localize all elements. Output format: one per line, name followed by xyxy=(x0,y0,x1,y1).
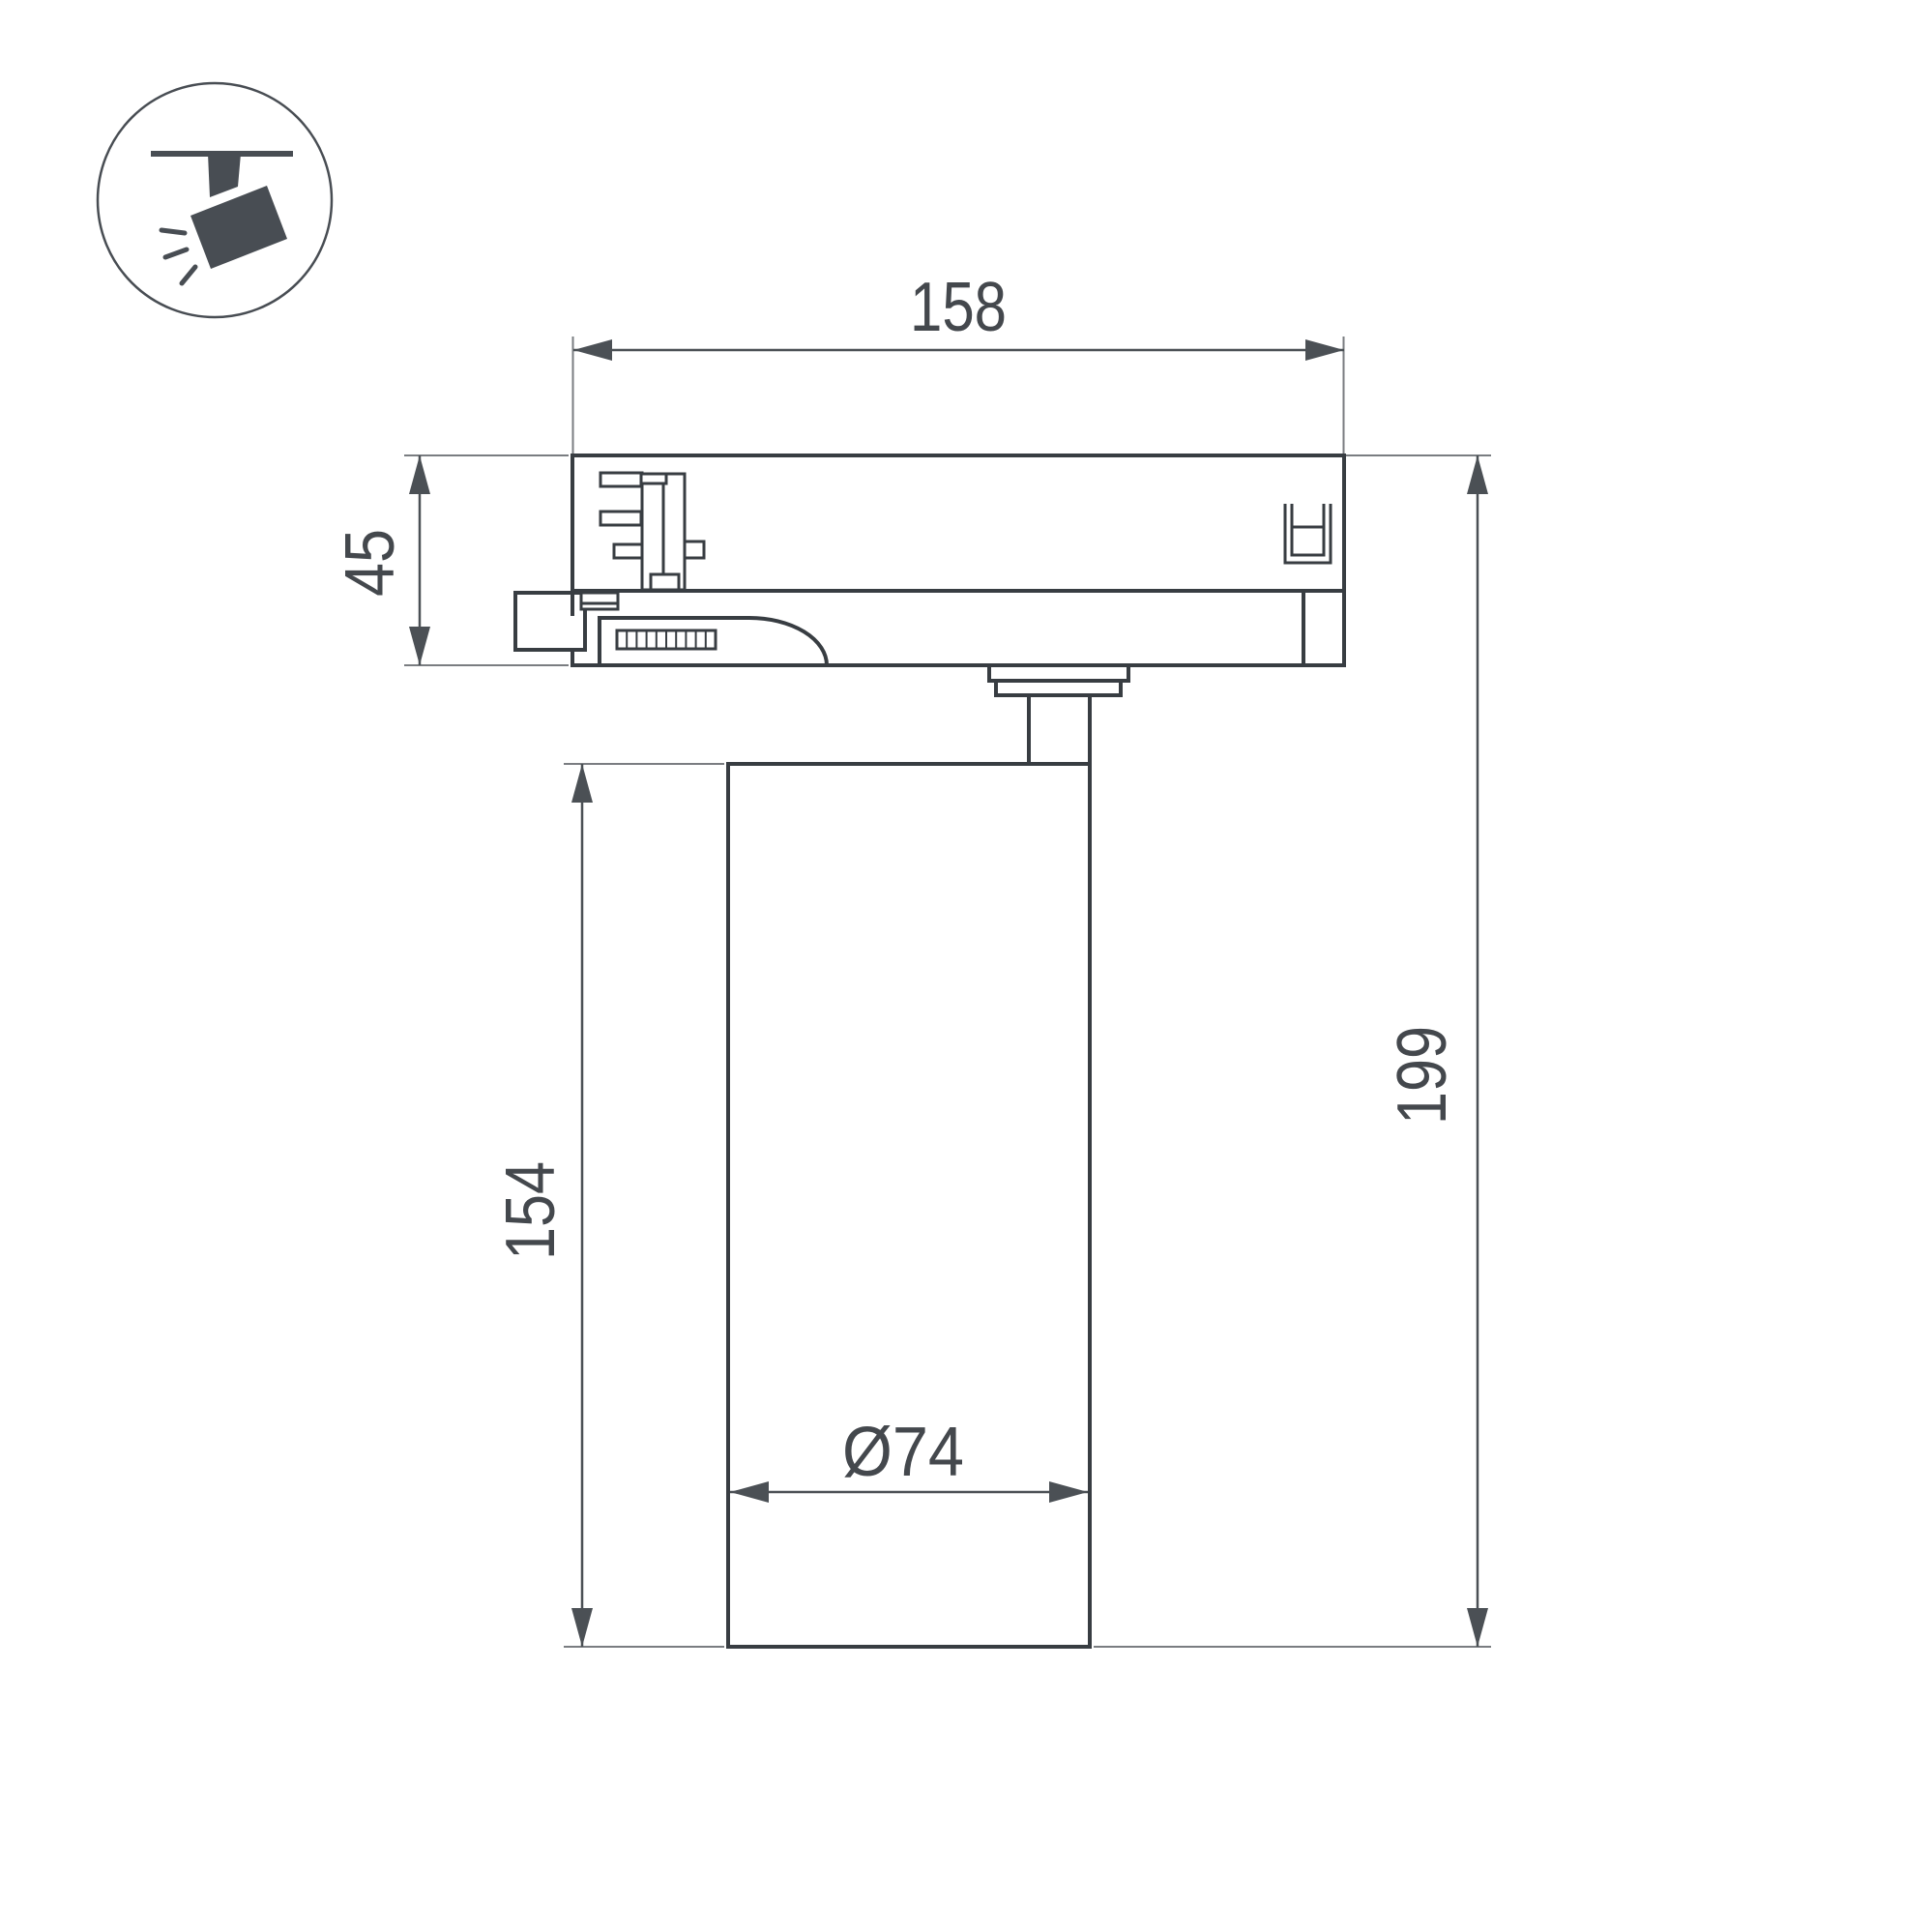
adapter-upper-housing xyxy=(572,455,1344,591)
lock-box xyxy=(515,593,585,650)
arrow-right xyxy=(1305,339,1344,361)
icon-light-rays xyxy=(161,230,195,283)
stem-flange-step-1 xyxy=(989,665,1128,681)
stem-flange-step-2 xyxy=(996,681,1121,695)
contact-prong-middle xyxy=(600,512,641,525)
dim-label-154: 154 xyxy=(492,1161,570,1260)
latch-plate xyxy=(581,593,618,609)
pin-cap xyxy=(641,474,666,483)
arrow-up xyxy=(1467,455,1488,494)
arrow-down xyxy=(571,1608,593,1647)
dim-adapter-width: 158 xyxy=(573,269,1345,454)
dim-label-diameter: Ø74 xyxy=(842,1414,964,1491)
technical-drawing-page: 158 45 154 199 Ø74 xyxy=(0,0,1932,1932)
lamp-cylinder-body xyxy=(728,764,1090,1647)
track-spotlight-icon xyxy=(98,83,332,317)
mount-stem xyxy=(989,665,1128,764)
technical-drawing-canvas: 158 45 154 199 Ø74 xyxy=(0,0,1932,1932)
icon-lamp-body xyxy=(190,186,287,269)
arrow-left xyxy=(573,339,612,361)
contact-prong-bottom xyxy=(614,544,642,558)
arrow-down xyxy=(409,627,430,665)
arrow-down xyxy=(1467,1608,1488,1647)
stem-column xyxy=(1029,695,1090,764)
arrow-up xyxy=(409,455,430,494)
pin-right-tab xyxy=(685,542,704,558)
latch-plate-outline xyxy=(581,593,618,609)
icon-mount-stem xyxy=(208,154,241,197)
pin-foot xyxy=(651,574,679,590)
arrow-up xyxy=(571,764,593,803)
dim-body-height: 154 xyxy=(492,764,724,1647)
dim-label-158: 158 xyxy=(910,269,1007,346)
icon-circle-border xyxy=(98,83,332,317)
dim-label-199: 199 xyxy=(1384,1026,1461,1125)
track-adapter xyxy=(515,455,1344,665)
contact-prong-top xyxy=(600,473,642,486)
dim-label-45: 45 xyxy=(332,529,409,597)
release-lever xyxy=(600,618,827,665)
